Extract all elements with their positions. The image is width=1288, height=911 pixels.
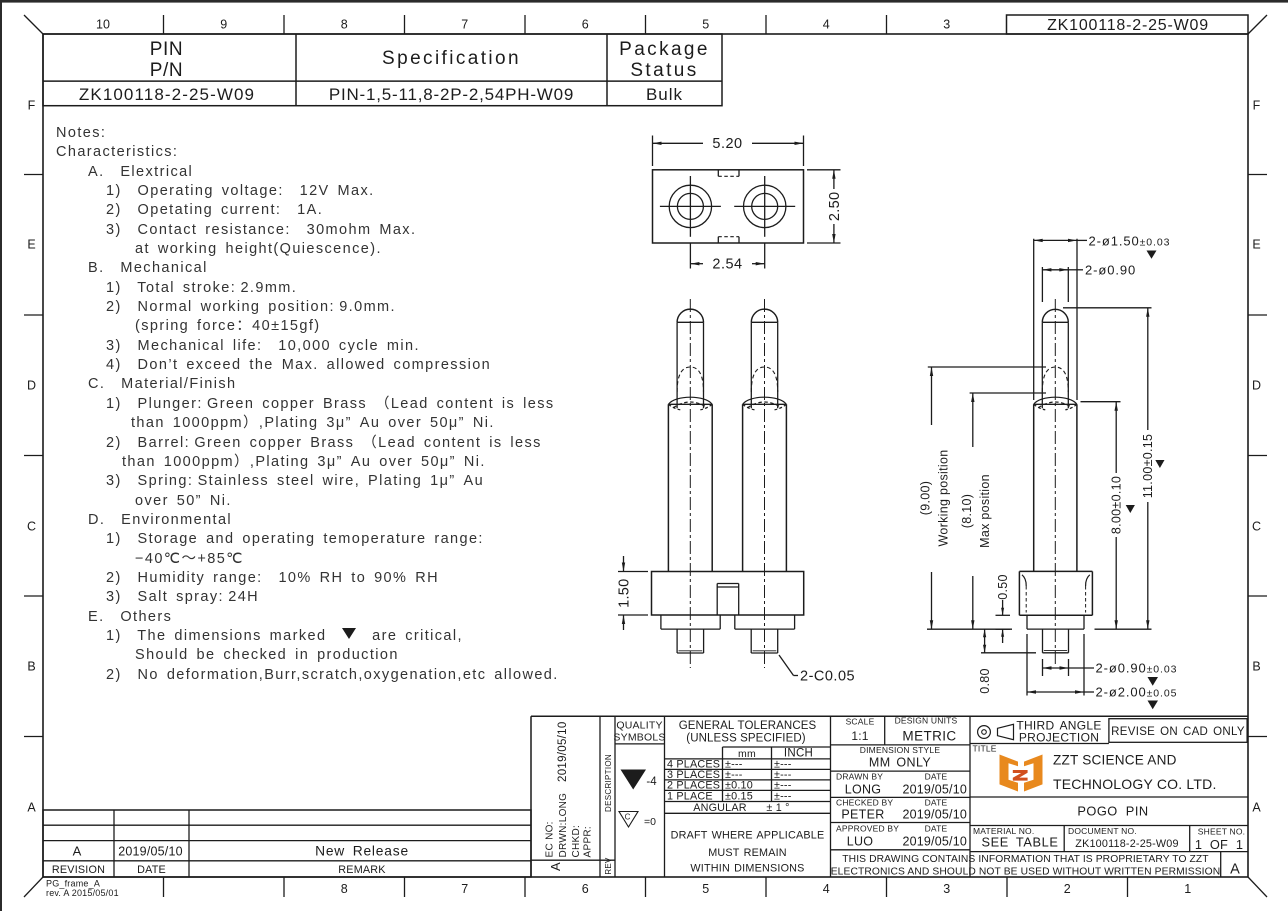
- svg-text:B: B: [27, 660, 35, 674]
- svg-text:4: 4: [823, 18, 830, 32]
- svg-text:2019/05/10: 2019/05/10: [118, 845, 183, 859]
- svg-text:0.50: 0.50: [996, 574, 1010, 600]
- svg-text:SEE TABLE: SEE TABLE: [982, 835, 1059, 850]
- svg-text:2019/05/10: 2019/05/10: [902, 808, 967, 822]
- svg-text:PROJECTION: PROJECTION: [1019, 731, 1099, 745]
- svg-text:LUO: LUO: [847, 835, 874, 849]
- svg-text:POGO PIN: POGO PIN: [1077, 804, 1148, 819]
- svg-text:1.50: 1.50: [617, 578, 633, 607]
- svg-text:PIN: PIN: [150, 39, 183, 60]
- svg-text:10: 10: [96, 18, 110, 32]
- svg-text:Specification: Specification: [382, 48, 521, 69]
- svg-text:DRAFT WHERE APPLICABLE: DRAFT WHERE APPLICABLE: [671, 830, 825, 842]
- svg-text:8: 8: [341, 18, 348, 32]
- svg-text:0.80: 0.80: [978, 668, 992, 694]
- svg-text:2-ø1.50±0.03: 2-ø1.50±0.03: [1089, 233, 1171, 248]
- svg-text:6: 6: [582, 882, 589, 896]
- svg-text:P/N: P/N: [150, 60, 183, 81]
- svg-text:REVISE ON CAD ONLY: REVISE ON CAD ONLY: [1111, 726, 1245, 738]
- svg-text:DIMENSION STYLE: DIMENSION STYLE: [860, 745, 941, 755]
- svg-text:-4: -4: [646, 776, 657, 788]
- svg-text:8.00±0.10: 8.00±0.10: [1110, 476, 1124, 534]
- svg-text:PIN-1,5-11,8-2P-2,54PH-W09: PIN-1,5-11,8-2P-2,54PH-W09: [329, 85, 574, 104]
- svg-text:REV: REV: [604, 857, 613, 875]
- svg-text:2019/05/10: 2019/05/10: [557, 721, 569, 782]
- svg-text:(UNLESS SPECIFIED): (UNLESS SPECIFIED): [686, 733, 805, 745]
- svg-text:rev. A 2015/05/01: rev. A 2015/05/01: [46, 888, 119, 898]
- svg-text:DOCUMENT NO.: DOCUMENT NO.: [1068, 826, 1137, 836]
- svg-text:A: A: [1230, 862, 1240, 878]
- svg-text:GENERAL TOLERANCES: GENERAL TOLERANCES: [679, 720, 817, 732]
- svg-text:ELECTRONICS AND SHOULD NOT BE: ELECTRONICS AND SHOULD NOT BE USED WITHO…: [831, 867, 1221, 878]
- svg-text:ZZT SCIENCE AND: ZZT SCIENCE AND: [1053, 753, 1177, 768]
- svg-text:Working position: Working position: [937, 450, 951, 547]
- svg-text:E: E: [27, 238, 35, 252]
- svg-text:QUALITY: QUALITY: [616, 720, 662, 732]
- svg-text:ZK100118-2-25-W09: ZK100118-2-25-W09: [1075, 838, 1178, 850]
- svg-text:MM ONLY: MM ONLY: [869, 756, 931, 770]
- svg-text:2-ø0.90: 2-ø0.90: [1085, 263, 1136, 278]
- svg-text:APPROVED BY: APPROVED BY: [836, 824, 899, 834]
- svg-text:1:1: 1:1: [851, 729, 868, 743]
- svg-text:REVISION: REVISION: [52, 864, 105, 876]
- svg-text:C: C: [625, 813, 631, 822]
- svg-text:1: 1: [1184, 882, 1191, 896]
- svg-text:DATE: DATE: [925, 772, 948, 782]
- svg-text:SYMBOLS: SYMBOLS: [613, 732, 665, 744]
- svg-text:5: 5: [702, 18, 709, 32]
- svg-text:4: 4: [823, 882, 830, 896]
- svg-text:Status: Status: [630, 60, 698, 81]
- svg-text:(8.10): (8.10): [960, 494, 974, 528]
- svg-text:SHEET NO.: SHEET NO.: [1198, 827, 1245, 837]
- svg-text:D: D: [27, 379, 36, 393]
- svg-text:THIS DRAWING CONTAINS INFORMAT: THIS DRAWING CONTAINS INFORMATION THAT I…: [842, 854, 1209, 865]
- svg-text:New Release: New Release: [315, 844, 409, 859]
- svg-text:2019/05/10: 2019/05/10: [902, 783, 967, 797]
- svg-text:CHECKED BY: CHECKED BY: [836, 798, 893, 808]
- svg-text:F: F: [28, 99, 36, 113]
- svg-text:CHKD:: CHKD:: [571, 825, 582, 858]
- svg-text:2.54: 2.54: [712, 256, 742, 272]
- svg-text:9: 9: [220, 18, 227, 32]
- svg-text:DATE: DATE: [137, 864, 166, 876]
- svg-text:Max position: Max position: [978, 474, 992, 548]
- svg-text:2-ø0.90±0.03: 2-ø0.90±0.03: [1096, 661, 1178, 676]
- svg-text:2.50: 2.50: [827, 192, 843, 221]
- svg-text:C: C: [1252, 520, 1261, 534]
- svg-text:LONG: LONG: [845, 783, 882, 797]
- svg-text:D: D: [1252, 379, 1261, 393]
- svg-text:2019/05/10: 2019/05/10: [902, 835, 967, 849]
- svg-text:5: 5: [702, 882, 709, 896]
- svg-text:DRWN:LONG: DRWN:LONG: [558, 793, 569, 858]
- svg-text:1 PLACE: 1 PLACE: [667, 790, 713, 802]
- svg-text:3: 3: [943, 882, 950, 896]
- svg-text:DATE: DATE: [925, 798, 948, 808]
- svg-text:DATE: DATE: [925, 824, 948, 834]
- svg-text:ZK100118-2-25-W09: ZK100118-2-25-W09: [79, 85, 255, 104]
- svg-text:MUST REMAIN: MUST REMAIN: [708, 847, 787, 859]
- svg-text:B: B: [1252, 660, 1260, 674]
- svg-text:±0.15: ±0.15: [725, 790, 753, 802]
- svg-text:A: A: [1252, 801, 1261, 815]
- svg-text:3: 3: [943, 18, 950, 32]
- svg-text:DRAWN BY: DRAWN BY: [836, 772, 883, 782]
- svg-text:2-ø2.00±0.05: 2-ø2.00±0.05: [1096, 685, 1178, 700]
- svg-text:A: A: [27, 801, 36, 815]
- svg-text:EC NO:: EC NO:: [545, 821, 556, 857]
- svg-text:A: A: [73, 844, 82, 859]
- svg-text:± 1 °: ± 1 °: [766, 802, 789, 814]
- svg-text:1 OF 1: 1 OF 1: [1195, 837, 1243, 852]
- svg-text:(9.00): (9.00): [919, 481, 933, 515]
- svg-text:C: C: [27, 520, 36, 534]
- svg-text:TITLE: TITLE: [973, 744, 997, 754]
- svg-text:TECHNOLOGY CO. LTD.: TECHNOLOGY CO. LTD.: [1053, 776, 1217, 792]
- svg-text:2-C0.05: 2-C0.05: [800, 669, 855, 685]
- svg-text:E: E: [1252, 238, 1260, 252]
- svg-text:7: 7: [461, 882, 468, 896]
- svg-text:2: 2: [1064, 882, 1071, 896]
- svg-text:METRIC: METRIC: [902, 729, 956, 744]
- svg-text:SCALE: SCALE: [846, 717, 875, 727]
- svg-text:8: 8: [341, 882, 348, 896]
- svg-text:F: F: [1253, 99, 1261, 113]
- svg-text:5.20: 5.20: [712, 136, 742, 152]
- svg-text:DESCRIPTION: DESCRIPTION: [604, 754, 613, 812]
- svg-text:±---: ±---: [774, 790, 792, 802]
- svg-text:Package: Package: [619, 39, 710, 60]
- svg-text:APPR:: APPR:: [583, 826, 594, 858]
- svg-text:7: 7: [461, 18, 468, 32]
- svg-text:REMARK: REMARK: [338, 864, 386, 876]
- svg-text:PG_frame_A: PG_frame_A: [46, 879, 100, 889]
- svg-text:11.00±0.15: 11.00±0.15: [1141, 434, 1155, 499]
- svg-text:WITHIN DIMENSIONS: WITHIN DIMENSIONS: [690, 863, 804, 875]
- svg-text:ZK100118-2-25-W09: ZK100118-2-25-W09: [1047, 17, 1209, 34]
- svg-text:DESIGN UNITS: DESIGN UNITS: [895, 716, 958, 726]
- svg-text:A: A: [548, 862, 563, 871]
- svg-text:ANGULAR: ANGULAR: [693, 802, 747, 814]
- svg-text:PETER: PETER: [841, 808, 884, 822]
- svg-text:Bulk: Bulk: [646, 85, 683, 104]
- svg-text:6: 6: [582, 18, 589, 32]
- svg-text:=0: =0: [644, 816, 656, 828]
